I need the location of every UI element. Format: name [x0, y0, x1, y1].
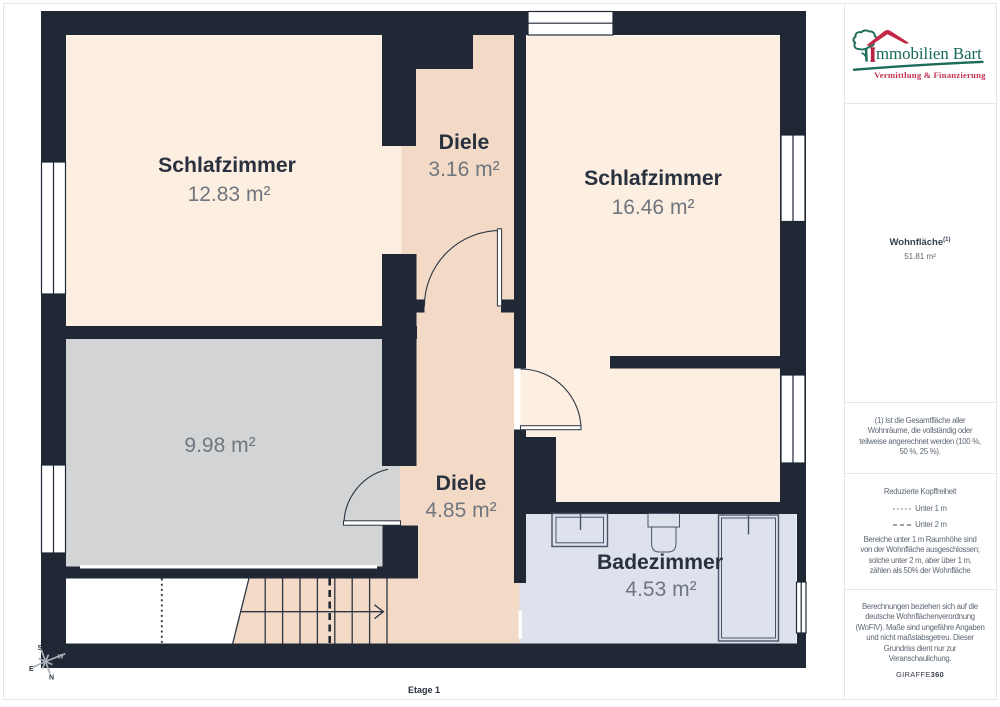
svg-text:N: N [49, 675, 54, 682]
svg-text:E: E [29, 666, 34, 673]
svg-text:S: S [37, 645, 42, 652]
svg-text:W: W [57, 653, 64, 660]
